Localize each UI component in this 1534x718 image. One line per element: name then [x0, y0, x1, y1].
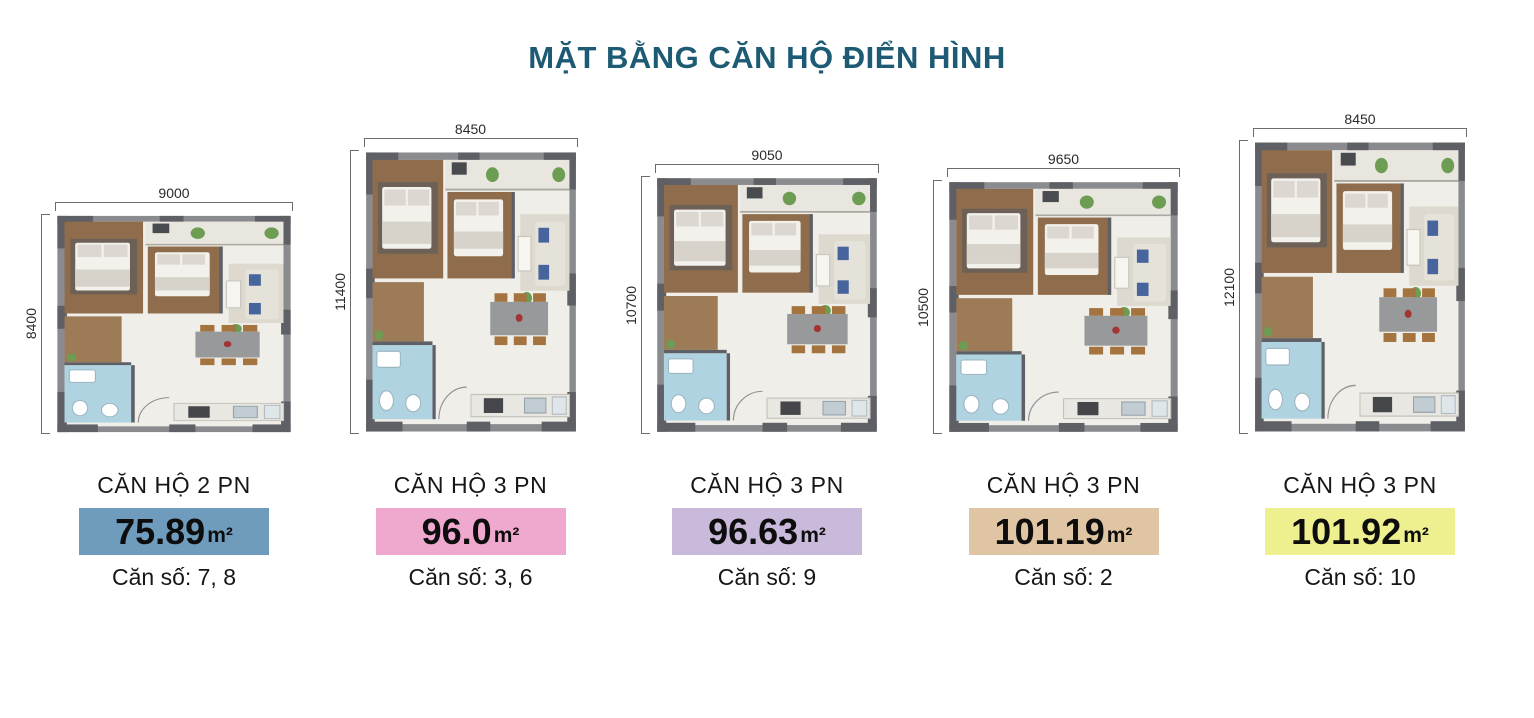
dimension-top-value: 8450 — [1253, 111, 1467, 127]
floor-plan-illustration — [55, 214, 293, 434]
floor-plan-illustration — [364, 150, 578, 434]
floor-plan-illustration — [655, 176, 879, 434]
dimension-left-value: 11400 — [332, 273, 348, 311]
dimension-left: 12100 — [1221, 140, 1248, 434]
dimension-left: 11400 — [332, 150, 359, 434]
dimension-top-value: 8450 — [364, 121, 578, 137]
dimension-bracket — [1239, 140, 1248, 434]
area-value: 101.19 — [995, 514, 1105, 550]
dimension-left-value: 10500 — [915, 288, 931, 327]
apartment-type-label: CĂN HỘ 3 PN — [690, 472, 844, 499]
apartment-type-label: CĂN HỘ 3 PN — [1283, 472, 1437, 499]
apartment-type-label: CĂN HỘ 3 PN — [394, 472, 548, 499]
dimension-left: 10700 — [623, 176, 650, 434]
apartment-card: 8450 12100 — [1212, 82, 1508, 591]
plan-area: 8450 11400 — [323, 82, 619, 434]
plan-area: 9050 10700 — [619, 82, 915, 434]
area-badge: 101.92 m² — [1265, 508, 1455, 555]
dimension-left-value: 12100 — [1221, 268, 1237, 307]
dimension-top: 9650 — [947, 151, 1180, 177]
unit-numbers-label: Căn số: 3, 6 — [408, 564, 532, 591]
area-badge: 96.63 m² — [672, 508, 862, 555]
unit-numbers-label: Căn số: 2 — [1014, 564, 1112, 591]
plan-area: 9000 8400 — [26, 82, 322, 434]
floor-plan — [55, 214, 293, 434]
area-unit: m² — [1107, 524, 1133, 548]
area-value: 96.0 — [422, 514, 492, 550]
area-badge: 101.19 m² — [969, 508, 1159, 555]
unit-numbers-label: Căn số: 7, 8 — [112, 564, 236, 591]
dimension-left-value: 8400 — [23, 308, 39, 339]
area-value: 75.89 — [115, 514, 205, 550]
area-unit: m² — [494, 524, 520, 548]
floor-plan — [1253, 140, 1467, 434]
dimension-top-value: 9000 — [55, 185, 293, 201]
dimension-bracket — [1253, 128, 1467, 137]
area-value: 96.63 — [708, 514, 798, 550]
unit-numbers-label: Căn số: 10 — [1304, 564, 1415, 591]
dimension-top: 9050 — [655, 147, 879, 173]
apartment-type-label: CĂN HỘ 2 PN — [97, 472, 251, 499]
apartment-cards-row: 9000 8400 — [0, 82, 1534, 591]
page-title: MẶT BẰNG CĂN HỘ ĐIỂN HÌNH — [0, 40, 1534, 76]
floor-plan — [655, 176, 879, 434]
floor-plan-illustration — [1253, 140, 1467, 434]
dimension-left-value: 10700 — [623, 286, 639, 325]
apartment-card: 9050 10700 — [619, 82, 915, 591]
dimension-top-value: 9650 — [947, 151, 1180, 167]
dimension-left: 8400 — [23, 214, 50, 434]
dimension-top: 8450 — [1253, 111, 1467, 137]
dimension-bracket — [947, 168, 1180, 177]
floor-plan-illustration — [947, 180, 1180, 434]
floor-plan — [947, 180, 1180, 434]
dimension-bracket — [933, 180, 942, 434]
dimension-top-value: 9050 — [655, 147, 879, 163]
apartment-card: 9000 8400 — [26, 82, 322, 591]
dimension-bracket — [55, 202, 293, 211]
dimension-top: 8450 — [364, 121, 578, 147]
area-unit: m² — [207, 524, 233, 548]
area-unit: m² — [800, 524, 826, 548]
dimension-bracket — [364, 138, 578, 147]
dimension-bracket — [641, 176, 650, 434]
apartment-card: 8450 11400 — [323, 82, 619, 591]
plan-area: 9650 10500 — [916, 82, 1212, 434]
area-value: 101.92 — [1291, 514, 1401, 550]
floor-plan — [364, 150, 578, 434]
dimension-top: 9000 — [55, 185, 293, 211]
apartment-type-label: CĂN HỘ 3 PN — [987, 472, 1141, 499]
dimension-bracket — [350, 150, 359, 434]
dimension-bracket — [41, 214, 50, 434]
apartment-card: 9650 10500 — [916, 82, 1212, 591]
plan-area: 8450 12100 — [1212, 82, 1508, 434]
area-badge: 96.0 m² — [376, 508, 566, 555]
unit-numbers-label: Căn số: 9 — [718, 564, 816, 591]
area-unit: m² — [1403, 524, 1429, 548]
dimension-bracket — [655, 164, 879, 173]
area-badge: 75.89 m² — [79, 508, 269, 555]
dimension-left: 10500 — [915, 180, 942, 434]
